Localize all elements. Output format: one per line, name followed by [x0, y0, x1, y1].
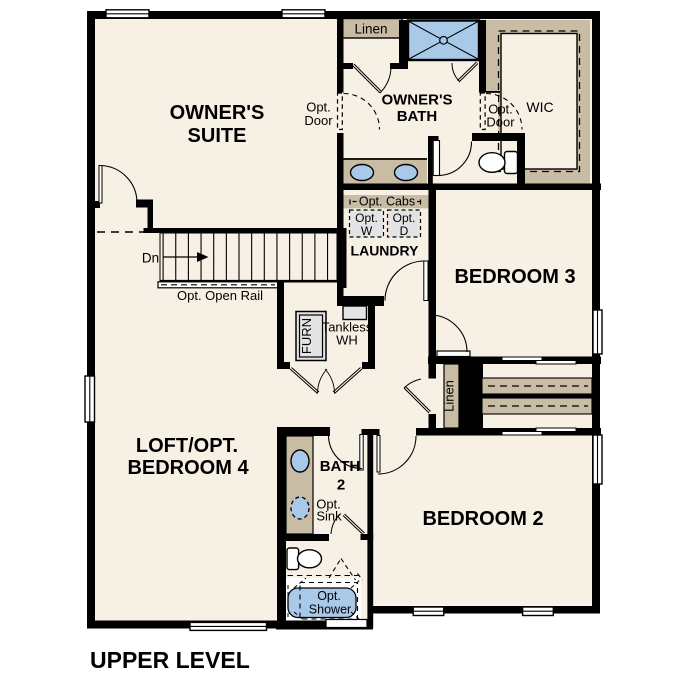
- svg-text:BATH: BATH: [320, 458, 361, 475]
- svg-text:LOFT/OPT.: LOFT/OPT.: [136, 435, 238, 457]
- svg-text:Sink: Sink: [316, 509, 342, 524]
- svg-text:BEDROOM 2: BEDROOM 2: [422, 508, 543, 530]
- svg-text:Opt.: Opt.: [317, 589, 341, 603]
- svg-text:Linen: Linen: [442, 380, 457, 412]
- svg-text:Door: Door: [486, 115, 515, 130]
- svg-text:Opt.: Opt.: [393, 211, 416, 225]
- svg-text:Opt. Cabs: Opt. Cabs: [359, 195, 415, 209]
- svg-text:LAUNDRY: LAUNDRY: [351, 243, 420, 259]
- svg-text:BEDROOM 4: BEDROOM 4: [127, 457, 249, 479]
- svg-text:Opt. Open Rail: Opt. Open Rail: [177, 288, 263, 303]
- svg-text:2: 2: [337, 477, 345, 494]
- svg-text:Linen: Linen: [354, 22, 387, 37]
- svg-text:Door: Door: [304, 113, 333, 128]
- svg-text:OWNER'S: OWNER'S: [381, 92, 452, 109]
- svg-text:BATH: BATH: [397, 108, 438, 125]
- svg-text:BEDROOM 3: BEDROOM 3: [454, 266, 575, 288]
- svg-text:UPPER LEVEL: UPPER LEVEL: [90, 647, 250, 673]
- svg-text:Dn: Dn: [142, 250, 159, 265]
- svg-text:SUITE: SUITE: [188, 125, 247, 147]
- svg-text:W: W: [361, 224, 373, 238]
- svg-text:D: D: [400, 224, 409, 238]
- svg-text:WH: WH: [336, 333, 358, 348]
- svg-text:Opt.: Opt.: [355, 211, 378, 225]
- svg-text:FURN: FURN: [299, 318, 314, 354]
- svg-text:OWNER'S: OWNER'S: [170, 102, 265, 124]
- svg-text:WIC: WIC: [526, 99, 553, 115]
- svg-text:Shower: Shower: [309, 602, 351, 616]
